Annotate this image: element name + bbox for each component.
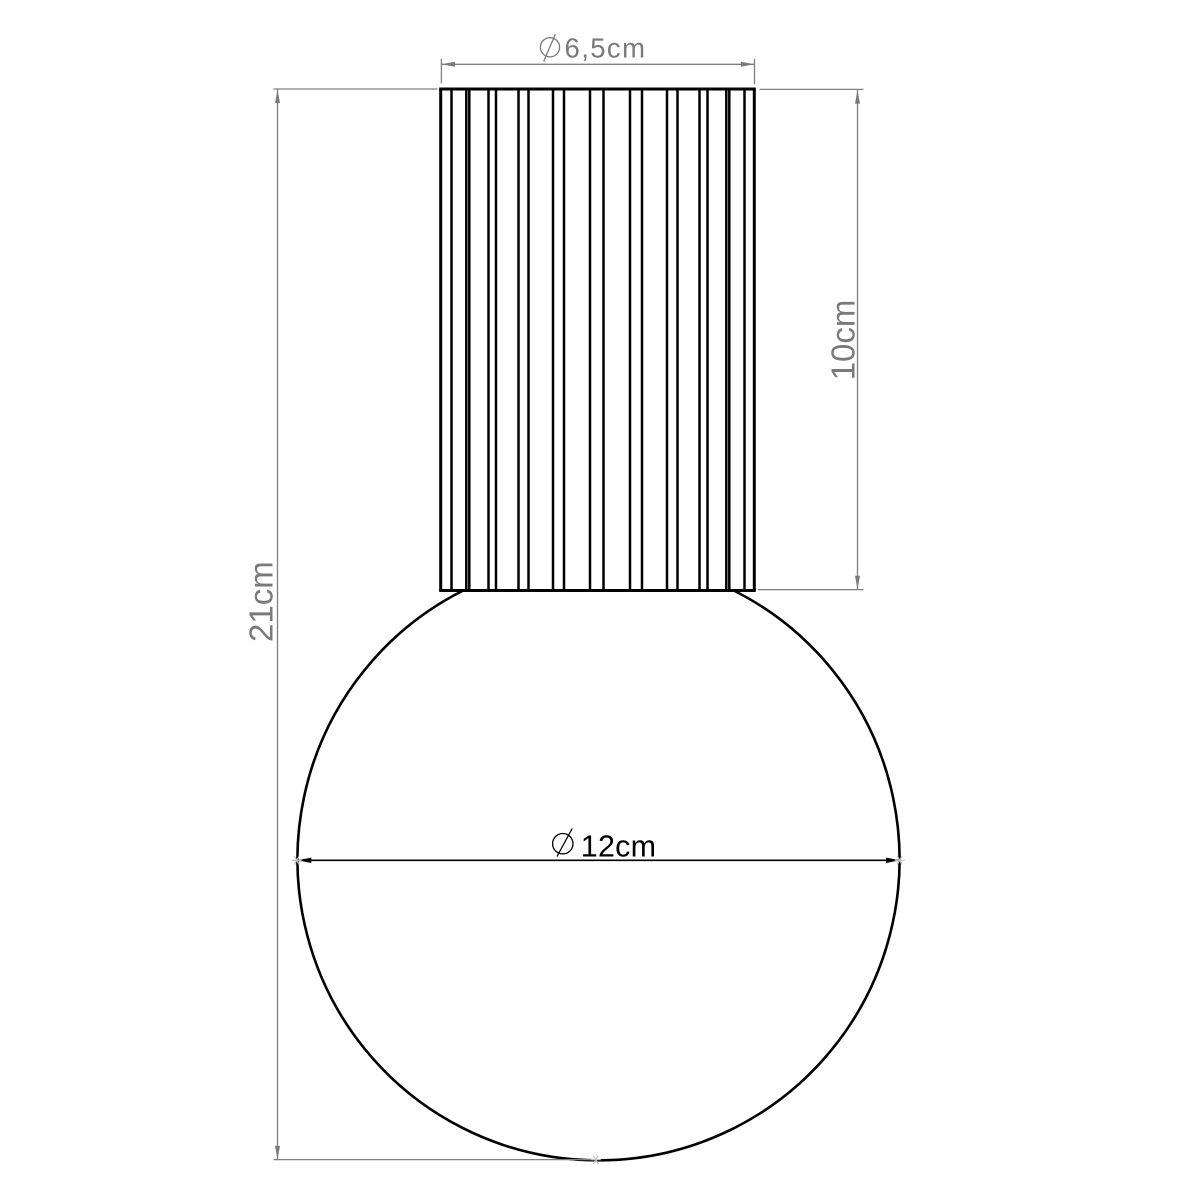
svg-text:21cm: 21cm bbox=[243, 561, 280, 642]
svg-text:6,5cm: 6,5cm bbox=[565, 33, 647, 64]
svg-text:12cm: 12cm bbox=[581, 830, 656, 864]
svg-text:10cm: 10cm bbox=[825, 300, 862, 381]
